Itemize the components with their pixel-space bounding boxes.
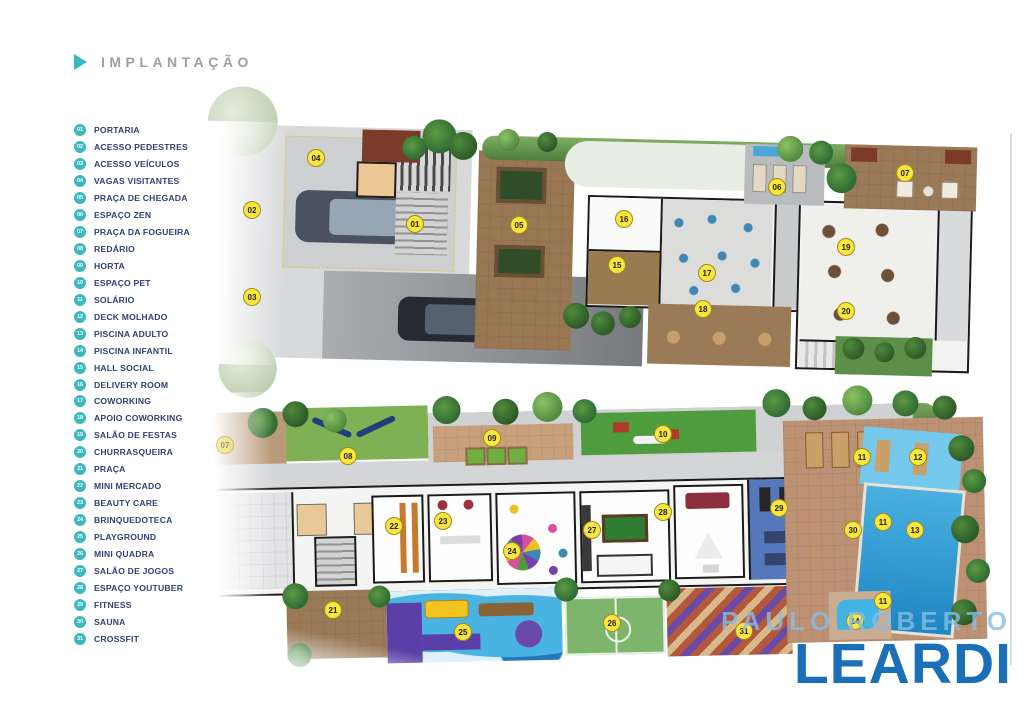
- legend-item: 06 ESPAÇO ZEN: [74, 207, 190, 224]
- white-flower-hedge: [564, 140, 765, 191]
- legend-item: 16 DELIVERY ROOM: [74, 376, 190, 393]
- game-room: [579, 489, 671, 583]
- legend-label: ESPAÇO YOUTUBER: [94, 583, 183, 593]
- delivery-room: [589, 197, 663, 253]
- section-arrow-icon: [74, 54, 87, 70]
- legend-label: MINI QUADRA: [94, 549, 154, 559]
- legend-item: 25 PLAYGROUND: [74, 529, 190, 546]
- legend-item: 28 ESPAÇO YOUTUBER: [74, 579, 190, 596]
- ramp-car-glass: [425, 304, 480, 335]
- legend-number-badge: 29: [74, 599, 86, 611]
- legend-label: SAUNA: [94, 617, 126, 627]
- stair-core: [314, 536, 357, 587]
- legend-number-badge: 27: [74, 565, 86, 577]
- upper-site-plan: [192, 95, 983, 382]
- playroom-brinquedoteca: [495, 491, 577, 585]
- legend-number-badge: 08: [74, 243, 86, 255]
- section-header: IMPLANTAÇÃO: [74, 54, 253, 70]
- firepit-planter: [851, 147, 877, 162]
- social-building-west: [585, 195, 801, 312]
- legend-label: DELIVERY ROOM: [94, 380, 168, 390]
- firepit-armchair: [941, 182, 958, 199]
- legend-label: PRAÇA DA FOGUEIRA: [94, 227, 190, 237]
- zen-lounger: [792, 165, 807, 193]
- legend-number-badge: 15: [74, 362, 86, 374]
- mini-market-room: [371, 495, 425, 584]
- pet-obstacle: [613, 422, 629, 432]
- legend-number-badge: 28: [74, 582, 86, 594]
- legend-item: 31 CROSSFIT: [74, 630, 190, 647]
- watermark-line1: PAULO ROBERTO: [688, 608, 1012, 634]
- legend-number-badge: 02: [74, 141, 86, 153]
- sun-lounger: [805, 432, 824, 468]
- legend-number-badge: 01: [74, 124, 86, 136]
- legend-item: 29 FITNESS: [74, 596, 190, 613]
- plaza-planter: [494, 245, 545, 278]
- watermark: PAULO ROBERTO LEARDI: [688, 608, 1012, 693]
- legend-number-badge: 23: [74, 497, 86, 509]
- corner-fade-overlay: [192, 616, 458, 682]
- legend-label: HORTA: [94, 261, 125, 271]
- legend-label: PRAÇA: [94, 464, 126, 474]
- pet-tunnel: [633, 435, 667, 444]
- legend-number-badge: 25: [74, 531, 86, 543]
- legend-label: SALÃO DE FESTAS: [94, 430, 177, 440]
- legend-number-badge: 17: [74, 395, 86, 407]
- legend-label: BEAUTY CARE: [94, 498, 158, 508]
- legend-label: ACESSO PEDESTRES: [94, 142, 188, 152]
- legend-item: 23 BEAUTY CARE: [74, 495, 190, 512]
- party-hall-kitchen: [935, 208, 971, 342]
- pedestrian-entry-stairs: [395, 192, 448, 255]
- hall-social-bar: [587, 251, 661, 306]
- portaria-booth: [356, 161, 397, 198]
- legend-label: BRINQUEDOTECA: [94, 515, 173, 525]
- watermark-line2: LEARDI: [688, 636, 1012, 693]
- legend-number-badge: 20: [74, 446, 86, 458]
- legend-label: HALL SOCIAL: [94, 363, 154, 373]
- legend-label: SALÃO DE JOGOS: [94, 566, 174, 576]
- party-hall: [800, 204, 936, 340]
- legend-number-badge: 12: [74, 311, 86, 323]
- beauty-care-room: [427, 493, 493, 582]
- legend-label: PISCINA ADULTO: [94, 329, 168, 339]
- site-plan-page: { "header": { "title": "IMPLANTAÇÃO" }, …: [0, 0, 1024, 718]
- legend-number-badge: 05: [74, 192, 86, 204]
- legend-item: 14 PISCINA INFANTIL: [74, 342, 190, 359]
- legend-label: PRAÇA DE CHEGADA: [94, 193, 188, 203]
- legend-label: VAGAS VISITANTES: [94, 176, 180, 186]
- legend-label: SOLÁRIO: [94, 295, 135, 305]
- legend-label: DECK MOLHADO: [94, 312, 168, 322]
- legend-number-badge: 31: [74, 633, 86, 645]
- legend-number-badge: 09: [74, 260, 86, 272]
- legend-item: 27 SALÃO DE JOGOS: [74, 562, 190, 579]
- legend-label: CHURRASQUEIRA: [94, 447, 173, 457]
- legend-label: CROSSFIT: [94, 634, 139, 644]
- firepit-armchair: [896, 181, 913, 198]
- legend-item: 04 VAGAS VISITANTES: [74, 173, 190, 190]
- legend-number-badge: 19: [74, 429, 86, 441]
- garden-bed: [486, 447, 506, 465]
- legend-item: 26 MINI QUADRA: [74, 545, 190, 562]
- legend-number-badge: 10: [74, 277, 86, 289]
- garden-bed: [465, 447, 485, 465]
- legend-item: 12 DECK MOLHADO: [74, 308, 190, 325]
- legend-number-badge: 07: [74, 226, 86, 238]
- zen-lounger: [772, 165, 787, 193]
- legend-item: 05 PRAÇA DE CHEGADA: [74, 190, 190, 207]
- legend-number-badge: 24: [74, 514, 86, 526]
- legend-number-badge: 13: [74, 328, 86, 340]
- legend-item: 03 ACESSO VEÍCULOS: [74, 156, 190, 173]
- legend-label: ACESSO VEÍCULOS: [94, 159, 180, 169]
- legend-item: 22 MINI MERCADO: [74, 478, 190, 495]
- legend-item: 10 ESPAÇO PET: [74, 274, 190, 291]
- legend-number-badge: 04: [74, 175, 86, 187]
- legend-label: PISCINA INFANTIL: [94, 346, 173, 356]
- firepit-planter: [945, 150, 971, 165]
- tan-foyer: [296, 504, 327, 537]
- legend-item: 02 ACESSO PEDESTRES: [74, 139, 190, 156]
- amenities-legend: 01 PORTARIA 02 ACESSO PEDESTRES 03 ACESS…: [74, 122, 190, 647]
- coworking-support-deck: [647, 304, 791, 367]
- legend-number-badge: 11: [74, 294, 86, 306]
- legend-item: 08 REDÁRIO: [74, 241, 190, 258]
- legend-item: 20 CHURRASQUEIRA: [74, 444, 190, 461]
- legend-number-badge: 16: [74, 379, 86, 391]
- legend-label: APOIO COWORKING: [94, 413, 182, 423]
- legend-label: ESPAÇO ZEN: [94, 210, 151, 220]
- page-title: IMPLANTAÇÃO: [101, 54, 253, 70]
- legend-item: 21 PRAÇA: [74, 461, 190, 478]
- visitor-car-glass: [329, 199, 402, 237]
- legend-number-badge: 06: [74, 209, 86, 221]
- amenities-building: [199, 475, 876, 597]
- right-border-line: [1010, 133, 1012, 665]
- legend-number-badge: 18: [74, 412, 86, 424]
- legend-number-badge: 22: [74, 480, 86, 492]
- legend-item: 24 BRINQUEDOTECA: [74, 512, 190, 529]
- sun-lounger: [831, 432, 850, 468]
- mini-court: [564, 596, 665, 656]
- legend-label: ESPAÇO PET: [94, 278, 151, 288]
- legend-item: 17 COWORKING: [74, 393, 190, 410]
- youtuber-room: [673, 484, 745, 579]
- legend-number-badge: 03: [74, 158, 86, 170]
- legend-label: MINI MERCADO: [94, 481, 161, 491]
- coworking-room: [660, 199, 773, 309]
- legend-label: FITNESS: [94, 600, 132, 610]
- plaza-planter: [496, 167, 547, 204]
- legend-item: 18 APOIO COWORKING: [74, 410, 190, 427]
- legend-item: 11 SOLÁRIO: [74, 291, 190, 308]
- legend-label: PORTARIA: [94, 125, 140, 135]
- legend-item: 13 PISCINA ADULTO: [74, 325, 190, 342]
- legend-item: 19 SALÃO DE FESTAS: [74, 427, 190, 444]
- legend-label: REDÁRIO: [94, 244, 135, 254]
- zen-lounger: [752, 164, 767, 192]
- legend-item: 30 SAUNA: [74, 613, 190, 630]
- left-fade-overlay: [187, 120, 288, 365]
- legend-item: 09 HORTA: [74, 258, 190, 275]
- legend-label: COWORKING: [94, 396, 151, 406]
- legend-number-badge: 14: [74, 345, 86, 357]
- legend-label: PLAYGROUND: [94, 532, 156, 542]
- legend-item: 07 PRAÇA DA FOGUEIRA: [74, 224, 190, 241]
- legend-item: 15 HALL SOCIAL: [74, 359, 190, 376]
- garden-bed: [507, 446, 527, 464]
- legend-number-badge: 30: [74, 616, 86, 628]
- legend-number-badge: 21: [74, 463, 86, 475]
- legend-item: 01 PORTARIA: [74, 122, 190, 139]
- legend-number-badge: 26: [74, 548, 86, 560]
